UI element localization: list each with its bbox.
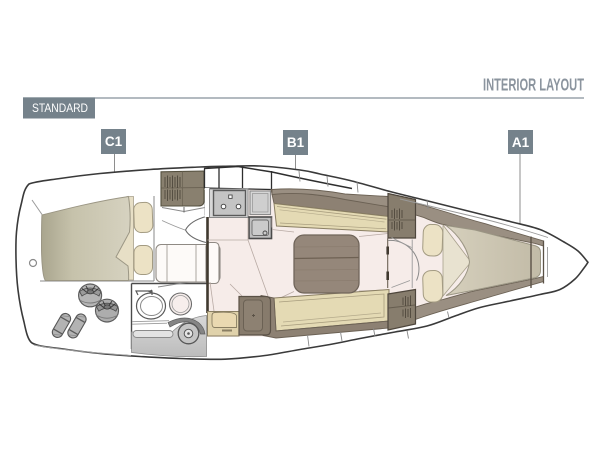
svg-text:INTERIOR LAYOUT: INTERIOR LAYOUT xyxy=(483,75,584,95)
svg-text:C1: C1 xyxy=(105,134,123,149)
svg-text:STANDARD: STANDARD xyxy=(32,102,88,115)
svg-text:B1: B1 xyxy=(287,135,305,150)
svg-text:A1: A1 xyxy=(512,135,530,150)
